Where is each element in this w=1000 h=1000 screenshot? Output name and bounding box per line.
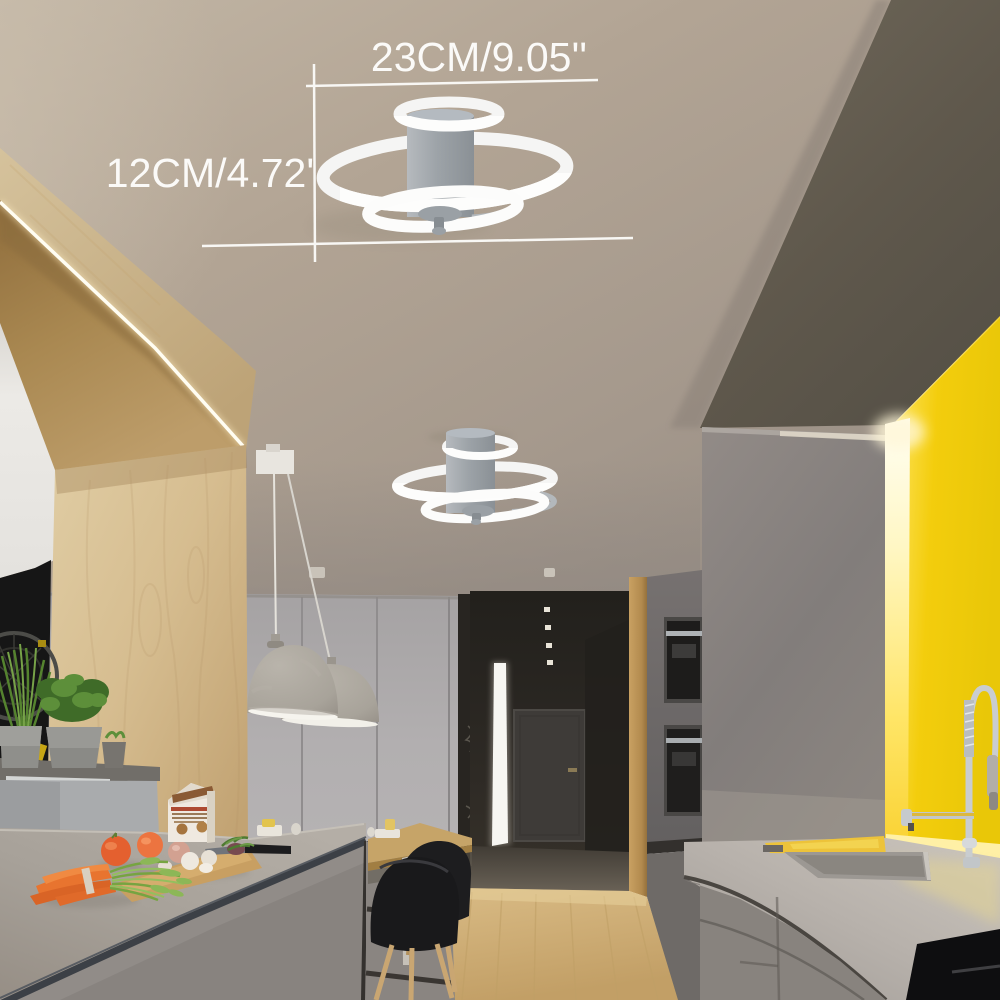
svg-text:12CM/4.72': 12CM/4.72' bbox=[106, 150, 314, 196]
svg-text:23CM/9.05'': 23CM/9.05'' bbox=[371, 34, 587, 80]
